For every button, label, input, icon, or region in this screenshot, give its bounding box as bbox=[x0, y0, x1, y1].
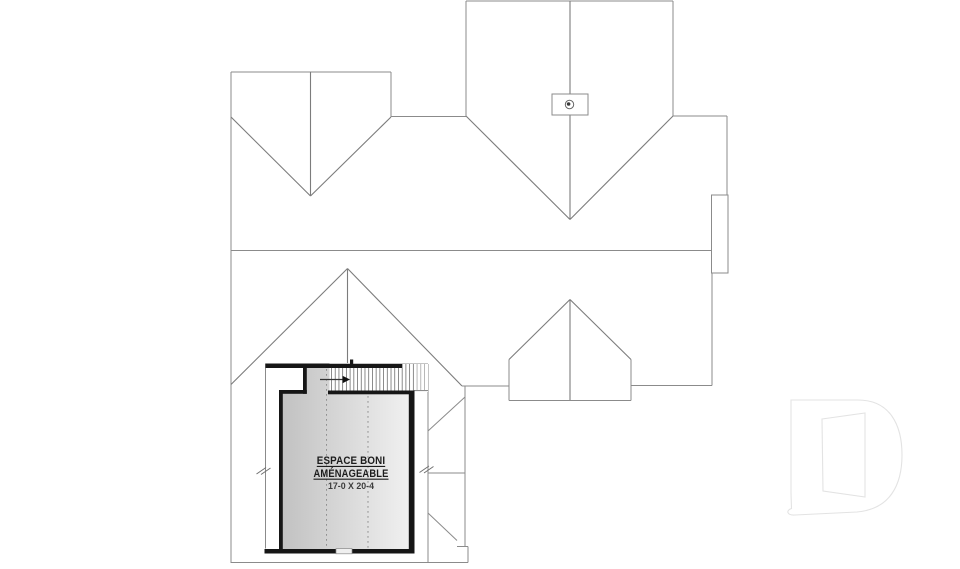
wall-right bbox=[409, 391, 415, 554]
bonus-room: ESPACE BONI AMÉNAGEABLE 17-0 X 20-4 bbox=[257, 360, 434, 554]
top-roof-hip-left bbox=[466, 116, 570, 220]
floor-plan-canvas: ESPACE BONI AMÉNAGEABLE 17-0 X 20-4 bbox=[0, 0, 960, 569]
break-mark-left bbox=[257, 468, 271, 475]
chimney bbox=[712, 195, 729, 273]
left-gable-hip-right bbox=[311, 117, 392, 196]
bottom-wall-vent bbox=[336, 549, 352, 554]
left-gable-hip-left bbox=[231, 117, 311, 196]
ridge-wall-tick bbox=[350, 360, 353, 369]
roof-plan-drawing: ESPACE BONI AMÉNAGEABLE 17-0 X 20-4 bbox=[0, 0, 960, 569]
wall-left bbox=[279, 390, 283, 554]
drummond-d-logo bbox=[788, 400, 902, 515]
room-label-line2: AMÉNAGEABLE bbox=[314, 467, 389, 480]
logo-inner-door bbox=[822, 413, 865, 497]
small-gable-hip-left bbox=[509, 300, 570, 360]
wall-stair-bottom bbox=[328, 391, 415, 395]
roof-vent-dot bbox=[567, 102, 571, 106]
top-roof-hip-right bbox=[570, 116, 673, 220]
wing-hip-lower bbox=[428, 513, 457, 541]
room-dimensions-label: 17-0 X 20-4 bbox=[328, 481, 375, 492]
wall-notch-vertical bbox=[303, 364, 307, 394]
small-gable-hip-right bbox=[570, 300, 631, 360]
break-mark-right bbox=[420, 466, 434, 473]
room-label-line1: ESPACE BONI bbox=[317, 455, 386, 467]
wall-top bbox=[266, 364, 403, 368]
logo-outer-d bbox=[788, 400, 902, 515]
wing-hip-upper bbox=[428, 397, 465, 431]
right-wing-outline bbox=[428, 364, 468, 563]
ridge-and-hip-lines bbox=[231, 1, 673, 401]
roof-vent bbox=[552, 94, 588, 115]
wall-notch-horizontal bbox=[279, 390, 307, 394]
